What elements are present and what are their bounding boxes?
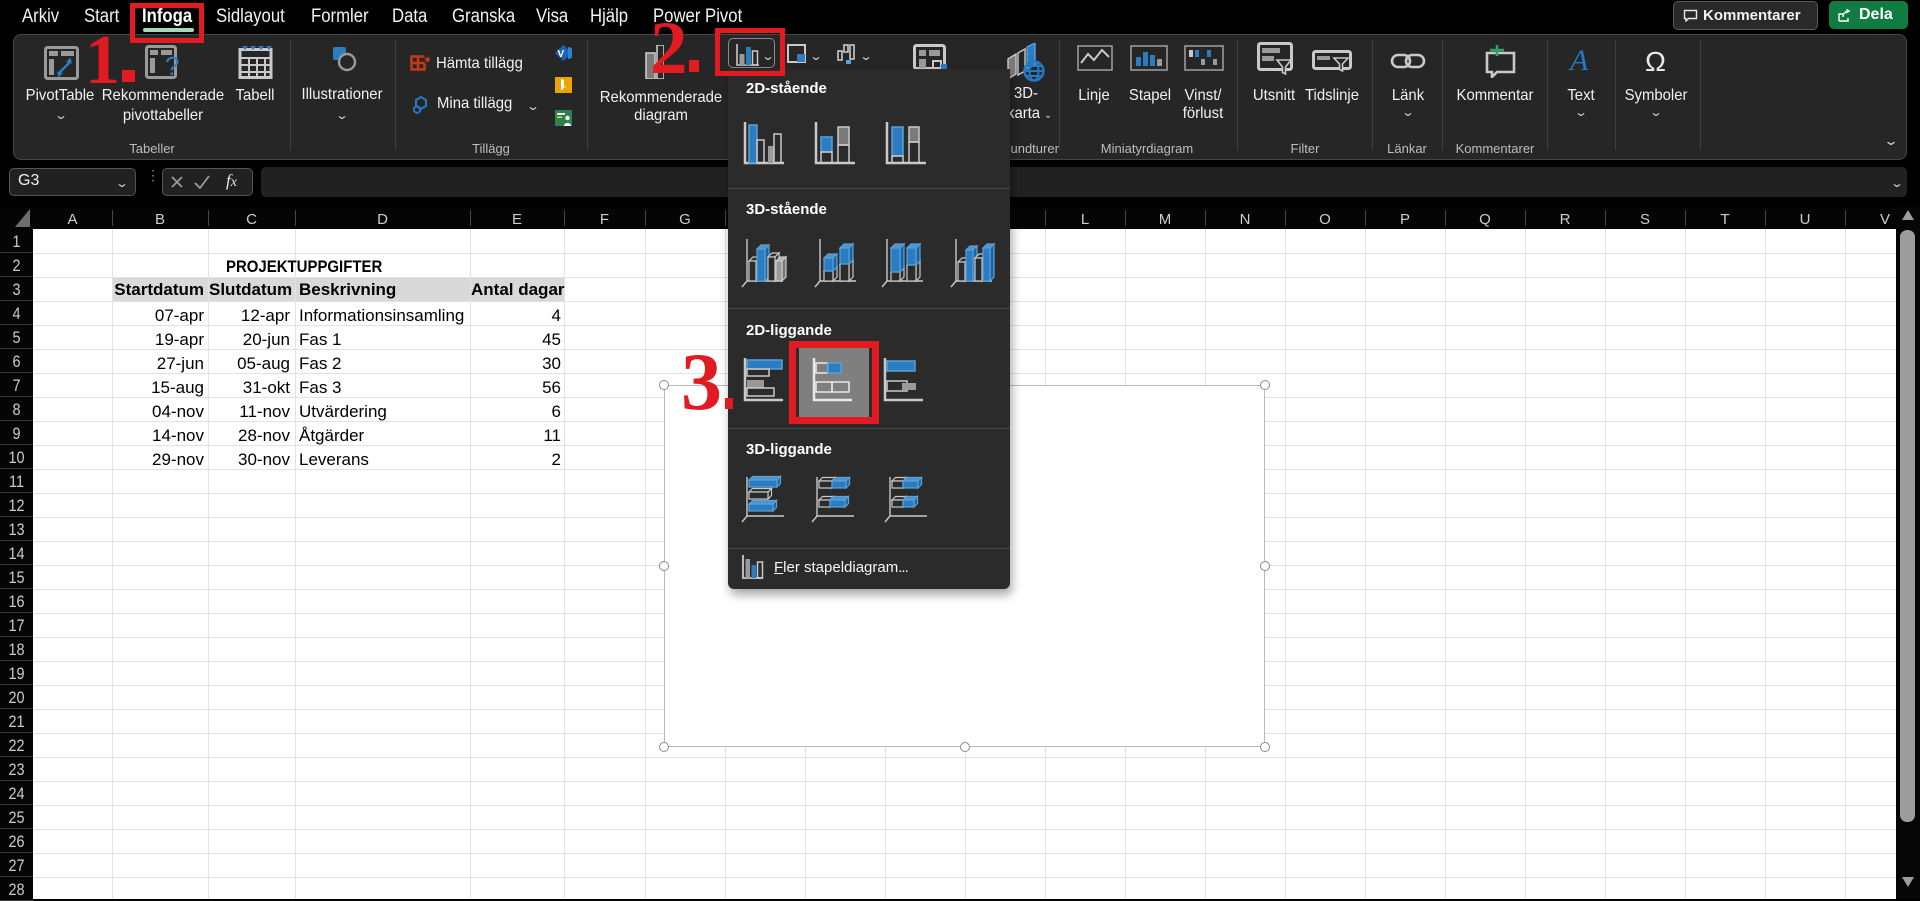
svg-text:?: ? (165, 51, 179, 80)
svg-text:V: V (558, 49, 565, 60)
